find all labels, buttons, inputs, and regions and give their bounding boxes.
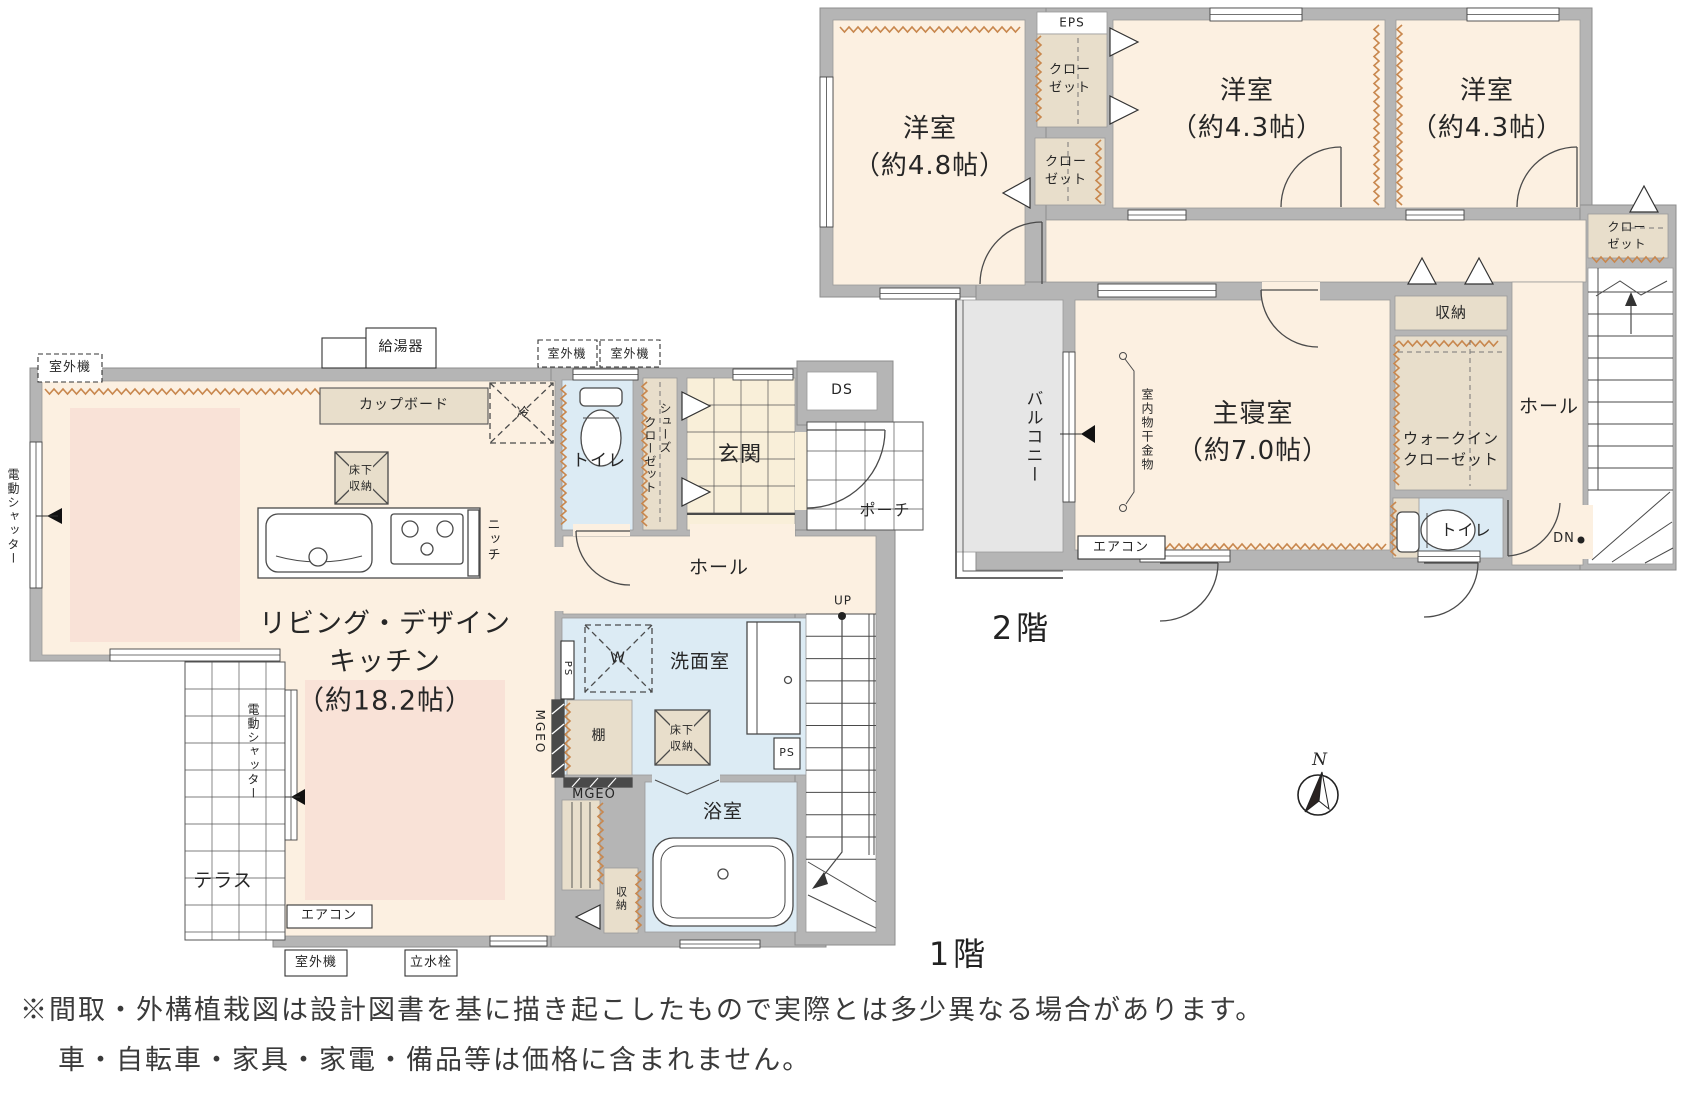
- storage-1f-label: 収納: [616, 886, 627, 912]
- walk-in-closet-label: ウォークイン クローゼット: [1403, 429, 1499, 472]
- niche-box: [468, 510, 479, 576]
- shelf-label: 棚: [592, 727, 607, 747]
- ps-box-label: PS: [779, 745, 795, 761]
- bathroom-label: 浴室: [703, 799, 743, 826]
- compass-icon: [1298, 772, 1338, 815]
- aircon-1f-label: エアコン: [301, 907, 357, 925]
- eps-label: EPS: [1059, 14, 1084, 31]
- shoes-closet-label-2: シューズ: [659, 402, 671, 454]
- underfloor-wash-label: 床下 収納: [670, 722, 694, 753]
- bathtub-icon: [653, 838, 793, 926]
- entrance-label: 玄関: [718, 440, 762, 470]
- room-label-bedroom-center: 洋室 （約4.3帖）: [1171, 73, 1323, 147]
- closet-east-label: クロー ゼット: [1607, 219, 1646, 253]
- shoes-closet-label-1: クローゼット: [644, 416, 656, 494]
- up-label: UP: [834, 592, 852, 609]
- living-label: リビング・デザイン キッチン （約18.2帖）: [259, 606, 511, 721]
- fridge-label: 冷: [515, 406, 528, 421]
- shutter-left-label: 電動シャッター: [7, 468, 19, 566]
- closet-upper-label: クロー ゼット: [1049, 62, 1091, 99]
- room-label-bedroom-east: 洋室 （約4.3帖）: [1411, 73, 1563, 147]
- dn-label: DN: [1553, 530, 1575, 548]
- compass-north-label: N: [1312, 748, 1328, 772]
- disclaimer-line1: ※間取・外構植栽図は設計図書を基に描き起こしたもので実際とは多少異なる場合があり…: [20, 988, 1264, 1027]
- hall-2f-label: ホール: [1519, 394, 1579, 421]
- mgeo-side-label: MGEO: [534, 710, 546, 755]
- laundry-hook-label: 室内物干金物: [1141, 388, 1153, 472]
- outdoor-unit-m2-label: 室外機: [610, 345, 649, 362]
- storage-2f-label: 収納: [1435, 302, 1467, 323]
- floorplan-canvas: 洋室 （約4.8帖） EPS クロー ゼット クロー ゼット 洋室 （約4.3帖…: [0, 0, 1681, 1096]
- balcony-label: バルコニー: [1024, 390, 1041, 485]
- toilet-1f-label: トイレ: [572, 449, 626, 473]
- aircon-2f-label: エアコン: [1093, 539, 1149, 557]
- floorplan-graphics: [0, 0, 1681, 1096]
- shutter-terrace-label: 電動シャッター: [247, 703, 259, 801]
- disclaimer-line2: 車・自転車・家具・家電・備品等は価格に含まれません。: [58, 1038, 811, 1077]
- outdoor-unit-tl-label: 室外機: [49, 359, 91, 377]
- floor2-title: 2階: [992, 603, 1052, 649]
- water-heater-label: 給湯器: [379, 338, 424, 358]
- closet-lower-label: クロー ゼット: [1045, 154, 1087, 191]
- hall-1f-label: ホール: [689, 555, 749, 582]
- mgeo-bottom-label: MGEO: [572, 786, 616, 804]
- room-label-bedroom-west: 洋室 （約4.8帖）: [854, 111, 1006, 185]
- outdoor-unit-bottom-label: 室外機: [295, 954, 337, 972]
- stove-icon: [391, 514, 463, 564]
- cupboard-label: カップボード: [359, 396, 449, 416]
- ds-label: DS: [831, 381, 853, 401]
- faucet-label: 立水栓: [410, 954, 452, 972]
- underfloor-kitchen-label: 床下 収納: [349, 462, 373, 493]
- washer-label: W: [610, 647, 626, 668]
- washroom-label: 洗面室: [670, 649, 730, 676]
- outdoor-unit-m1-label: 室外機: [547, 345, 586, 362]
- vanity-icon: [747, 622, 800, 734]
- ps-left-label: PS: [562, 661, 572, 677]
- niche-label: ニッチ: [486, 518, 499, 563]
- toilet-2f-label: トイレ: [1440, 520, 1491, 543]
- floor1-title: 1階: [929, 929, 989, 975]
- terrace-label: テラス: [193, 868, 253, 895]
- master-bedroom-label: 主寝室 （約7.0帖）: [1177, 396, 1329, 470]
- porch-label: ポーチ: [859, 500, 910, 523]
